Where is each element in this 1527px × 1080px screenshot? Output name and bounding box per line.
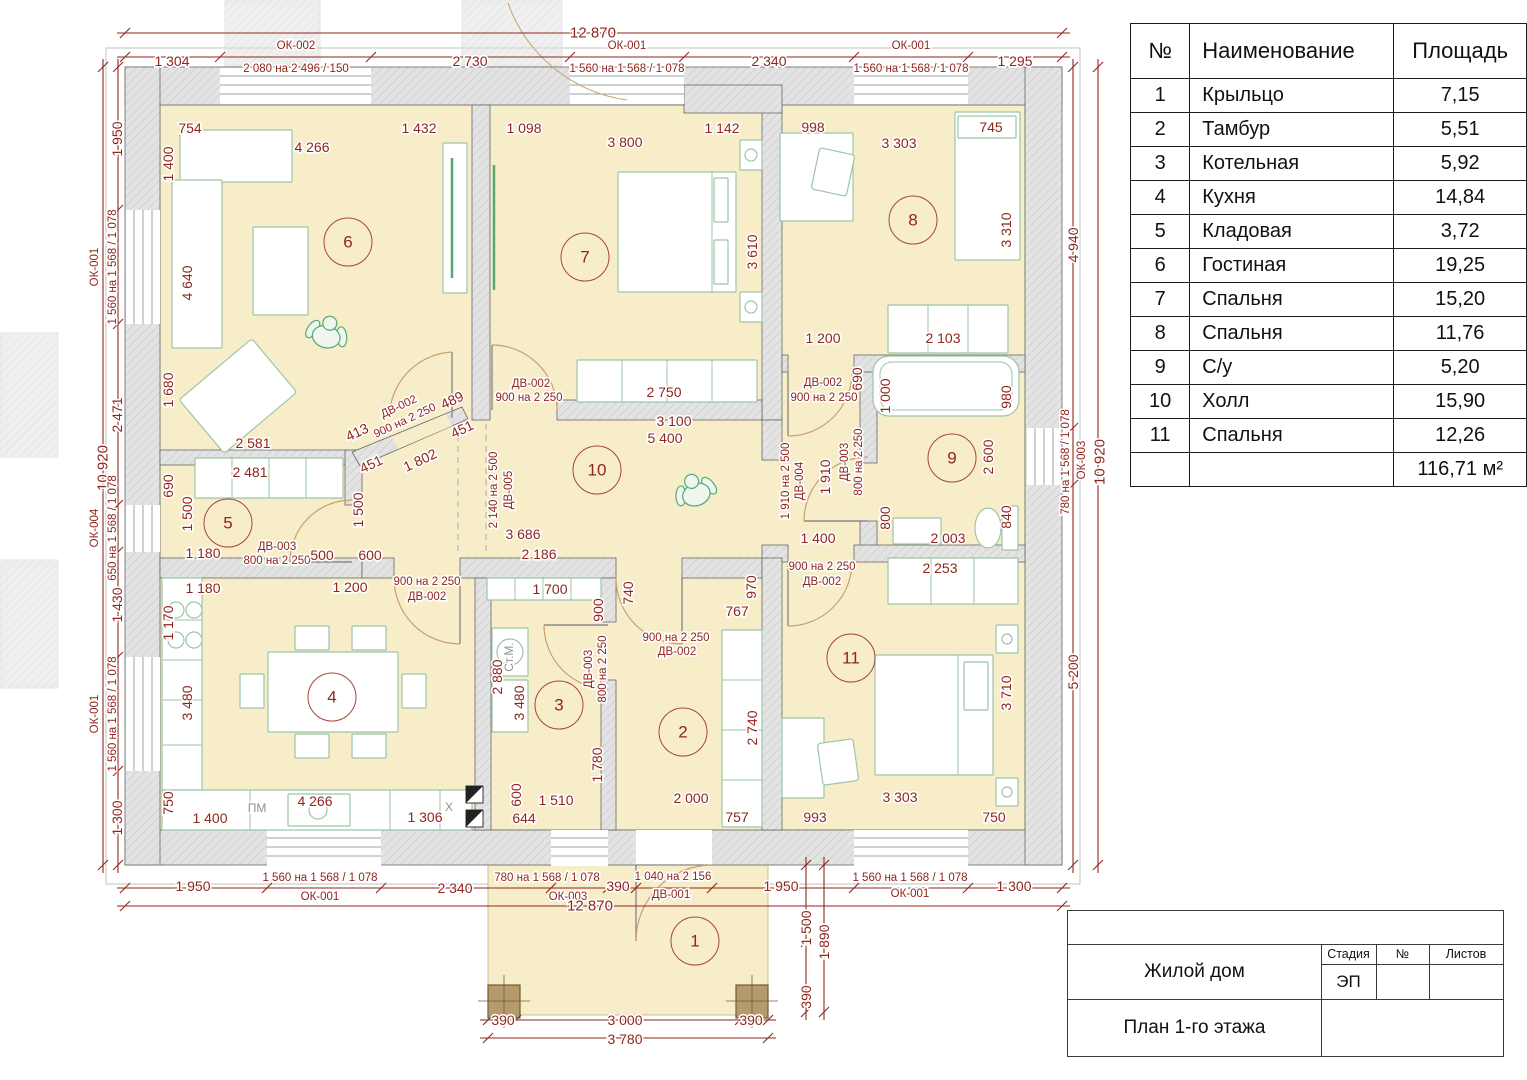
room-area: 19,25	[1394, 249, 1527, 283]
dimension-label: 4 266	[294, 139, 329, 155]
room-area: 14,84	[1394, 181, 1527, 215]
dimension-label: ДВ-003	[839, 443, 851, 481]
dimension-label: 2 600	[980, 439, 996, 474]
dimension-label: 1 950	[175, 878, 210, 894]
dimension-label: 3 780	[607, 1031, 642, 1047]
dimension-label: 900 на 2 250	[788, 561, 855, 573]
dimension-label: ДВ-002	[658, 646, 696, 658]
furniture-detail	[1002, 634, 1012, 644]
furniture-detail	[1002, 787, 1012, 797]
dimension-label: 2 750	[646, 384, 681, 400]
dimension-label: 900	[590, 598, 606, 622]
dimension-label: 970	[743, 575, 759, 599]
dimension-label: 4 266	[297, 793, 332, 809]
dimension-label: 644	[512, 810, 536, 826]
furniture	[172, 180, 222, 348]
dimension-label: 745	[979, 119, 1003, 135]
wall	[782, 355, 788, 372]
room-schedule: № Наименование Площадь 1Крыльцо7,15 2Там…	[1130, 23, 1527, 487]
dimension-label: 1 700	[532, 581, 567, 597]
dimension-label: 1 890	[816, 924, 832, 959]
dimension-label: 998	[801, 119, 825, 135]
schedule-row: 3Котельная5,92	[1131, 147, 1527, 181]
dimension-label: 3 310	[998, 212, 1014, 247]
dimension-label: 2 880	[489, 659, 505, 694]
room-name: Спальня	[1190, 283, 1394, 317]
furniture-chair	[817, 739, 858, 786]
window	[551, 830, 608, 866]
dimension-label: 1 200	[332, 579, 367, 595]
wall	[472, 105, 490, 420]
dimension-label: 500	[310, 547, 334, 563]
dimension-label: 1 180	[185, 580, 220, 596]
dimension-label: 780 на 1 568 / 1 078	[494, 872, 599, 884]
dimension-label: 2 140 на 2 500	[488, 452, 500, 529]
furniture	[782, 718, 824, 798]
schedule-row: 8Спальня11,76	[1131, 317, 1527, 351]
dimension-label: 1 040 на 2 156	[635, 871, 712, 883]
dimension-label: ОК-003	[1076, 441, 1088, 480]
wall	[762, 105, 782, 420]
dimension-label: ОК-001	[608, 40, 647, 52]
furniture	[714, 178, 728, 222]
dimension-label: 900 на 2 250	[790, 392, 857, 404]
project-name: Жилой дом	[1068, 944, 1321, 999]
room-area: 12,26	[1394, 419, 1527, 453]
dimension-label: 5 200	[1065, 654, 1081, 689]
dimension-label: 1 910	[817, 459, 833, 494]
dimension-label: ДВ-003	[583, 650, 595, 688]
room-name: Котельная	[1190, 147, 1394, 181]
floor-plan-sheet: 12 8701 304ОК-0022 080 на 2 496 / 1502 7…	[0, 0, 1527, 1080]
schedule-row: 10Холл15,90	[1131, 385, 1527, 419]
dimension-label: 1 400	[192, 810, 227, 826]
dimension-label: 1 910 на 2 500	[780, 443, 792, 520]
dimension-label: 1 142	[704, 120, 739, 136]
dimension-label: 3 686	[505, 526, 540, 542]
wall	[682, 558, 762, 578]
dimension-label: 3 100	[656, 413, 691, 429]
sheet-name: План 1-го этажа	[1068, 999, 1321, 1056]
dimension-label: 1 200	[805, 330, 840, 346]
dimension-label: 1 500	[179, 496, 195, 531]
dimension-label: 900 на 2 250	[495, 392, 562, 404]
dimension-label: ДВ-002	[803, 576, 841, 588]
furniture	[295, 734, 329, 758]
dimension-label: 1 500	[798, 910, 814, 945]
dimension-label: 1 300	[109, 800, 125, 835]
dimension-label: 600	[358, 547, 382, 563]
schedule-header-row: № Наименование Площадь	[1131, 24, 1527, 79]
dimension-label: 2 340	[437, 880, 472, 896]
room-number: 2	[678, 723, 687, 742]
schedule-row: 2Тамбур5,51	[1131, 113, 1527, 147]
dimension-label: 767	[725, 603, 749, 619]
room-num: 1	[1131, 79, 1190, 113]
schedule-row: 5Кладовая3,72	[1131, 215, 1527, 249]
dimension-label: 2 186	[521, 546, 556, 562]
room-number: 5	[223, 514, 232, 533]
room-name: Кухня	[1190, 181, 1394, 215]
furniture	[443, 143, 467, 293]
room-number: 8	[908, 211, 917, 230]
room-name: Тамбур	[1190, 113, 1394, 147]
furniture-detail	[186, 602, 202, 618]
dimension-label: 2 340	[751, 53, 786, 69]
room-area: 5,92	[1394, 147, 1527, 181]
room-area: 5,51	[1394, 113, 1527, 147]
room-num: 11	[1131, 419, 1190, 453]
furniture-detail	[745, 149, 757, 161]
dimension-label: ДВ-002	[512, 378, 550, 390]
room-area: 15,90	[1394, 385, 1527, 419]
dimension-label: ДВ-002	[804, 377, 842, 389]
stage-label: Стадия	[1321, 944, 1376, 964]
dimension-label: 1 295	[997, 53, 1032, 69]
dimension-label: 600	[508, 783, 524, 807]
room-area: 7,15	[1394, 79, 1527, 113]
room-num: 10	[1131, 385, 1190, 419]
dimension-label: ДВ-003	[258, 541, 296, 553]
dimension-label: 3 303	[882, 789, 917, 805]
dimension-label: 690	[160, 474, 176, 498]
furniture	[295, 626, 329, 650]
room-number: 1	[690, 932, 699, 951]
dimension-label: 1 170	[160, 605, 176, 640]
dimension-label: 3 000	[607, 1012, 642, 1028]
dimension-label: ОК-001	[891, 888, 930, 900]
furniture-chair	[811, 148, 855, 197]
dimension-label: 1 098	[506, 120, 541, 136]
dimension-label: 1 400	[800, 530, 835, 546]
room-num: 2	[1131, 113, 1190, 147]
dimension-label: 1 560 на 1 568 / 1 078	[107, 209, 119, 324]
exterior-pier	[0, 333, 58, 457]
wall	[684, 85, 782, 113]
dimension-label: ОК-002	[277, 40, 316, 52]
dimension-label: 12 870	[567, 898, 613, 915]
room-num: 8	[1131, 317, 1190, 351]
dimension-label: 2 080 на 2 496 / 150	[243, 63, 348, 75]
wall	[762, 558, 782, 830]
total-empty	[1131, 453, 1190, 487]
room-num: 4	[1131, 181, 1190, 215]
dimension-label: 754	[178, 120, 202, 136]
room-number: 6	[343, 233, 352, 252]
dimension-label: ОК-001	[89, 695, 101, 734]
room-area: 15,20	[1394, 283, 1527, 317]
dimension-label: 3 710	[998, 675, 1014, 710]
title-block: Жилой дом План 1-го этажа Стадия № Листо…	[1067, 910, 1504, 1057]
furniture	[240, 674, 264, 708]
dimension-label: 900 на 2 250	[642, 632, 709, 644]
window	[267, 830, 381, 866]
schedule-row: 11Спальня12,26	[1131, 419, 1527, 453]
dimension-label: 4 940	[1065, 227, 1081, 262]
furniture	[714, 240, 728, 284]
exterior-pier	[0, 560, 58, 688]
room-area: 5,20	[1394, 351, 1527, 385]
schedule-row: 9С/у5,20	[1131, 351, 1527, 385]
furniture	[352, 734, 386, 758]
schedule-row: 1Крыльцо7,15	[1131, 79, 1527, 113]
dimension-label: ОК-001	[892, 40, 931, 52]
dimension-label: 390	[491, 1012, 515, 1028]
dimension-label: 3 610	[744, 234, 760, 269]
dimension-label: 1 304	[154, 53, 189, 69]
room-name: С/у	[1190, 351, 1394, 385]
dimension-label: 1 950	[763, 878, 798, 894]
dimension-label: ДВ-001	[652, 889, 690, 901]
dimension-label: 780 на 1 568 / 1 078	[1060, 409, 1072, 514]
room-num: 6	[1131, 249, 1190, 283]
dimension-label: 3 303	[881, 135, 916, 151]
dimension-label: 1 560 на 1 568 / 1 078	[853, 63, 968, 75]
dimension-label: 390	[798, 985, 814, 1009]
dimension-label: 1 950	[109, 121, 125, 156]
room-number: 3	[554, 696, 563, 715]
dimension-label: 800	[877, 506, 893, 530]
wall	[762, 420, 782, 460]
dimension-label: 1 510	[538, 792, 573, 808]
dimension-label: 900 на 2 250	[393, 576, 460, 588]
dimension-label: 1 560 на 1 568 / 1 078	[262, 872, 377, 884]
dimension-label: 390	[606, 878, 630, 894]
dimension-label: 3 480	[511, 685, 527, 720]
dimension-label: 1 560 на 1 568 / 1 078	[569, 63, 684, 75]
dimension-label: 840	[998, 505, 1014, 529]
number-label: №	[1376, 944, 1429, 964]
dimension-label: 2 103	[925, 330, 960, 346]
furniture	[402, 674, 426, 708]
room-number: 4	[327, 688, 336, 707]
dimension-label: 1 500	[350, 492, 366, 527]
dimension-label: 800 на 2 250	[243, 555, 310, 567]
window	[854, 830, 968, 866]
schedule-header-area: Площадь	[1394, 24, 1527, 79]
dimension-label: ДВ-004	[794, 461, 806, 500]
room-num: 5	[1131, 215, 1190, 249]
dimension-label: 4 640	[179, 265, 195, 300]
dimension-label: 993	[803, 809, 827, 825]
dimension-label: 2 000	[673, 790, 708, 806]
dimension-label: X	[445, 800, 453, 814]
room-number: 7	[580, 248, 589, 267]
room-number: 10	[588, 461, 607, 480]
furniture	[964, 662, 988, 710]
dimension-label: 10 920	[1092, 439, 1109, 485]
dimension-label: ДВ-005	[503, 471, 515, 509]
furniture	[352, 626, 386, 650]
floor-plan-drawing: 12 8701 304ОК-0022 080 на 2 496 / 1502 7…	[0, 0, 1115, 1080]
dimension-label: 2 481	[232, 464, 267, 480]
dimension-label: ОК-004	[89, 508, 101, 547]
schedule-row: 7Спальня15,20	[1131, 283, 1527, 317]
dimension-label: ДВ-002	[408, 591, 446, 603]
room-number: 9	[947, 449, 956, 468]
dimension-label: 1 780	[589, 747, 605, 782]
schedule-row: 4Кухня14,84	[1131, 181, 1527, 215]
dimension-label: 5 400	[647, 430, 682, 446]
entrance-door-opening	[636, 830, 712, 864]
room-schedule-table: № Наименование Площадь 1Крыльцо7,15 2Там…	[1130, 23, 1527, 487]
dimension-label: 1 430	[109, 587, 125, 622]
dimension-label: 2 730	[452, 53, 487, 69]
dimension-label: 740	[620, 581, 636, 605]
room-area: 11,76	[1394, 317, 1527, 351]
stage-value: ЭП	[1321, 964, 1376, 999]
schedule-total-row: 116,71 м²	[1131, 453, 1527, 487]
furniture	[180, 130, 292, 182]
dimension-label: 690	[849, 367, 865, 391]
sheets-label: Листов	[1429, 944, 1503, 964]
dimension-label: ОК-001	[89, 248, 101, 287]
dimension-label: 800 на 2 250	[853, 428, 865, 495]
dimension-label: 1 306	[407, 809, 442, 825]
room-name: Спальня	[1190, 419, 1394, 453]
furniture-detail	[745, 301, 757, 313]
room-area: 3,72	[1394, 215, 1527, 249]
room-num: 7	[1131, 283, 1190, 317]
dimension-label: 2 471	[109, 397, 125, 432]
dimension-label: 1 180	[185, 545, 220, 561]
dimension-label: 2 253	[922, 560, 957, 576]
schedule-row: 6Гостиная19,25	[1131, 249, 1527, 283]
dimension-label: 650 на 1 568 / 1 078	[107, 475, 119, 580]
room-name: Гостиная	[1190, 249, 1394, 283]
dimension-label: 800 на 2 250	[597, 635, 609, 702]
dimension-label: 1 680	[160, 372, 176, 407]
dimension-label: 3 480	[179, 685, 195, 720]
dimension-label: 750	[982, 809, 1006, 825]
dimension-label: 2 581	[235, 435, 270, 451]
dimension-label: 390	[739, 1012, 763, 1028]
dimension-label: 1 560 на 1 568 / 1 078	[107, 656, 119, 771]
room-number: 11	[842, 649, 860, 668]
room-name: Кладовая	[1190, 215, 1394, 249]
total-area: 116,71 м²	[1394, 453, 1527, 487]
dimension-label: ОК-001	[301, 891, 340, 903]
room-name: Спальня	[1190, 317, 1394, 351]
schedule-header-name: Наименование	[1190, 24, 1394, 79]
dimension-label: 750	[160, 791, 176, 815]
furniture-detail	[186, 632, 202, 648]
dimension-label: 757	[725, 809, 749, 825]
room-name: Крыльцо	[1190, 79, 1394, 113]
schedule-header-num: №	[1131, 24, 1190, 79]
dimension-label: 980	[998, 385, 1014, 409]
dimension-label: ПМ	[248, 801, 267, 815]
room-num: 9	[1131, 351, 1190, 385]
dimension-label: 1 560 на 1 568 / 1 078	[852, 872, 967, 884]
dimension-label: 3 800	[607, 134, 642, 150]
dimension-label: 1 000	[877, 378, 893, 413]
dimension-label: 1 432	[401, 120, 436, 136]
dimension-label: 2 003	[930, 530, 965, 546]
furniture	[253, 227, 308, 315]
room-num: 3	[1131, 147, 1190, 181]
dimension-label: 1 300	[996, 878, 1031, 894]
dimension-label: 2 740	[744, 710, 760, 745]
dimension-label: 12 870	[570, 25, 616, 42]
total-empty	[1190, 453, 1394, 487]
room-name: Холл	[1190, 385, 1394, 419]
dimension-label: 1 400	[160, 146, 176, 181]
